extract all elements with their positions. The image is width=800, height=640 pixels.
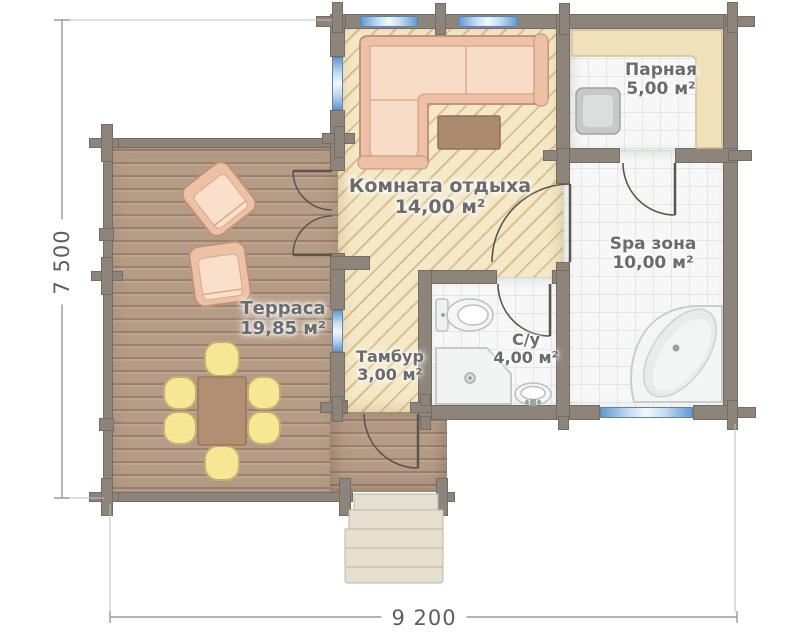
dimension-height: 7 500	[50, 219, 74, 304]
wall-segment	[556, 14, 570, 163]
floor-plan: Комната отдыха 14,00 м² Парная 5,00 м² S…	[0, 0, 800, 640]
wall-segment	[420, 405, 600, 420]
room-label-steam-room: Парная 5,00 м²	[625, 61, 697, 99]
log-end	[339, 478, 351, 516]
log-end	[332, 2, 343, 33]
railing	[103, 138, 333, 148]
room-name: Терраса	[240, 299, 326, 319]
log-end	[728, 150, 752, 161]
room-name: Парная	[625, 61, 697, 80]
dimension-width: 9 200	[381, 606, 466, 630]
room-area: 3,00 м²	[356, 366, 424, 384]
window	[360, 16, 418, 27]
wall-segment	[723, 14, 738, 420]
window	[600, 407, 693, 418]
stairs	[345, 494, 443, 583]
wall-segment	[330, 256, 370, 270]
room-area: 4,00 м²	[493, 349, 558, 367]
log-end	[435, 3, 446, 35]
window	[458, 16, 518, 27]
log-end	[558, 416, 569, 430]
room-label-rest-room: Комната отдыха 14,00 м²	[349, 176, 531, 219]
log-end	[727, 400, 738, 430]
log-end	[101, 478, 113, 516]
room-name: Тамбур	[356, 348, 424, 366]
room-name: С/у	[493, 331, 558, 349]
wall-segment	[556, 148, 570, 184]
log-end	[436, 478, 448, 516]
room-area: 14,00 м²	[349, 197, 531, 218]
room-name: Комната отдыха	[349, 176, 531, 197]
room-name: Spa зона	[610, 235, 697, 254]
room-label-bathroom: С/у 4,00 м²	[493, 331, 558, 367]
room-area: 19,85 м²	[240, 319, 326, 339]
railing	[103, 138, 113, 502]
log-end	[420, 394, 431, 406]
railing-post	[99, 228, 114, 241]
room-label-vestibule: Тамбур 3,00 м²	[356, 348, 424, 384]
log-end	[101, 124, 113, 162]
window	[332, 57, 343, 110]
room-label-terrace: Терраса 19,85 м²	[240, 299, 326, 339]
room-label-spa-zone: Spa зона 10,00 м²	[610, 235, 697, 273]
spa-zone-floor	[563, 150, 730, 412]
log-end	[420, 416, 431, 430]
log-end	[559, 3, 570, 35]
log-end	[332, 396, 343, 422]
log-end	[101, 257, 113, 295]
room-area: 5,00 м²	[625, 80, 697, 99]
log-end	[543, 150, 558, 161]
wall-segment	[330, 352, 345, 402]
railing-post	[99, 418, 114, 431]
log-end	[727, 2, 738, 33]
window	[332, 310, 343, 352]
log-end	[334, 126, 345, 158]
railing	[103, 492, 353, 502]
room-area: 10,00 м²	[610, 254, 697, 273]
